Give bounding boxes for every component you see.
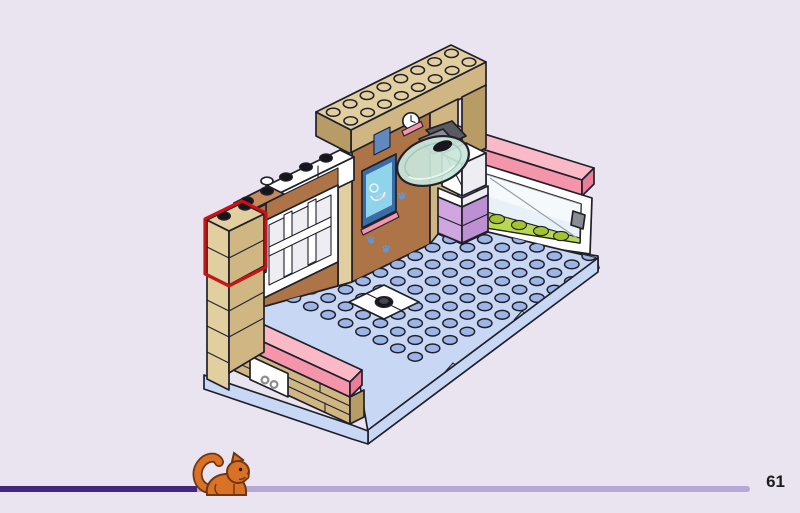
lego-build-illustration <box>0 0 800 513</box>
instruction-page: 61 <box>0 0 800 513</box>
cat-icon <box>198 453 249 495</box>
progress-bar <box>0 486 750 492</box>
page-number: 61 <box>766 472 785 492</box>
window-latch <box>571 211 585 229</box>
progress-bar-completed <box>0 486 197 492</box>
